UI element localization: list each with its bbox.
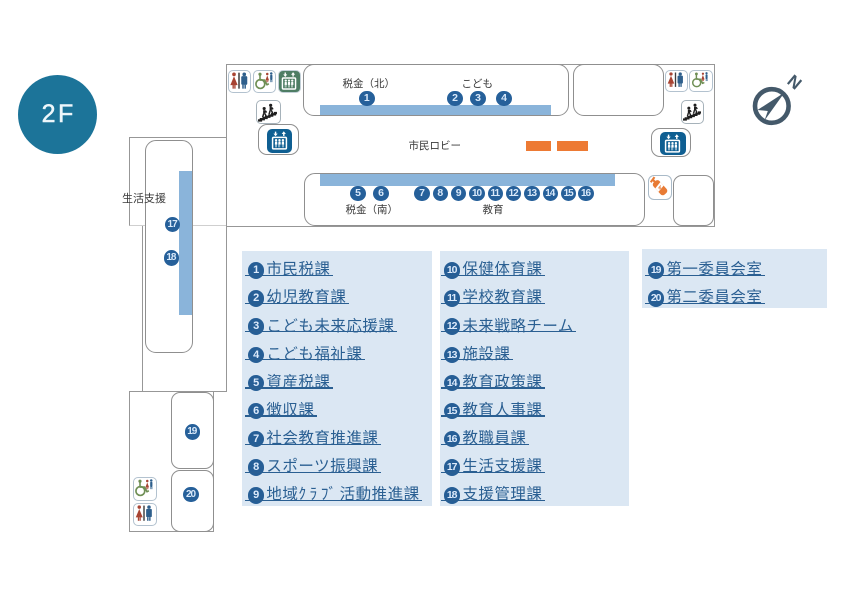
svg-text:N: N [784,71,806,93]
